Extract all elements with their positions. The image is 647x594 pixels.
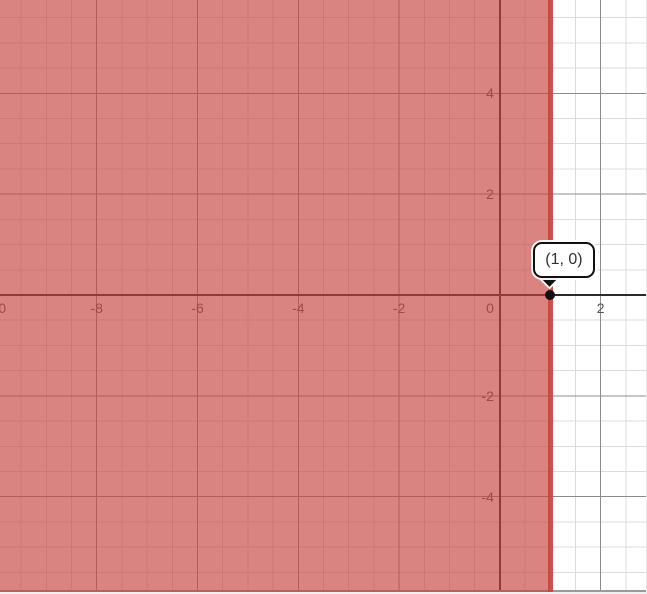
- shaded-region: [0, 0, 550, 592]
- point-tooltip: (1, 0): [533, 242, 594, 278]
- graphing-canvas[interactable]: -10-8-6-4-20242-2-4 (1, 0): [0, 0, 647, 594]
- tooltip-label: (1, 0): [533, 242, 594, 278]
- x-tick-label: 2: [597, 301, 605, 315]
